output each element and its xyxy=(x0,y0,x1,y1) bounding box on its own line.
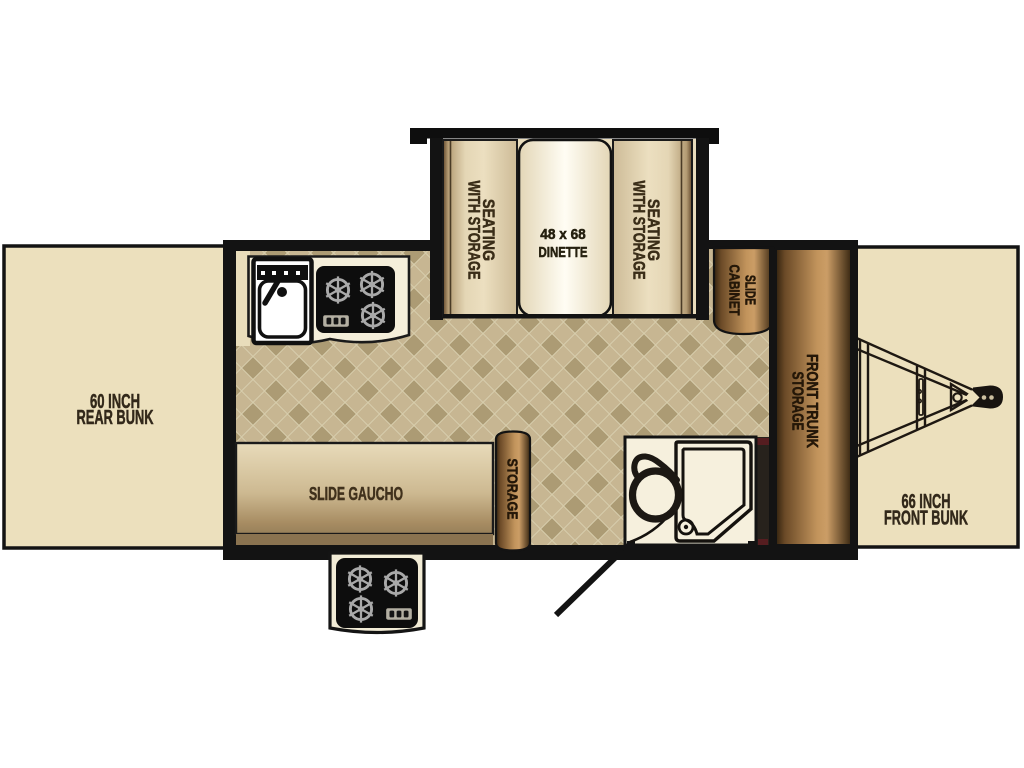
svg-text:REAR BUNK: REAR BUNK xyxy=(77,406,154,429)
svg-text:STORAGE: STORAGE xyxy=(789,372,806,431)
svg-text:SLIDE: SLIDE xyxy=(742,275,759,305)
svg-text:FRONT BUNK: FRONT BUNK xyxy=(884,507,968,530)
svg-text:STORAGE: STORAGE xyxy=(504,459,521,520)
svg-text:DINETTE: DINETTE xyxy=(539,245,588,261)
svg-text:CABINET: CABINET xyxy=(726,265,743,316)
svg-text:WITH STORAGE: WITH STORAGE xyxy=(465,181,484,280)
svg-text:SLIDE GAUCHO: SLIDE GAUCHO xyxy=(309,483,403,504)
svg-text:48 x 68: 48 x 68 xyxy=(540,227,586,243)
svg-text:WITH STORAGE: WITH STORAGE xyxy=(630,181,649,280)
